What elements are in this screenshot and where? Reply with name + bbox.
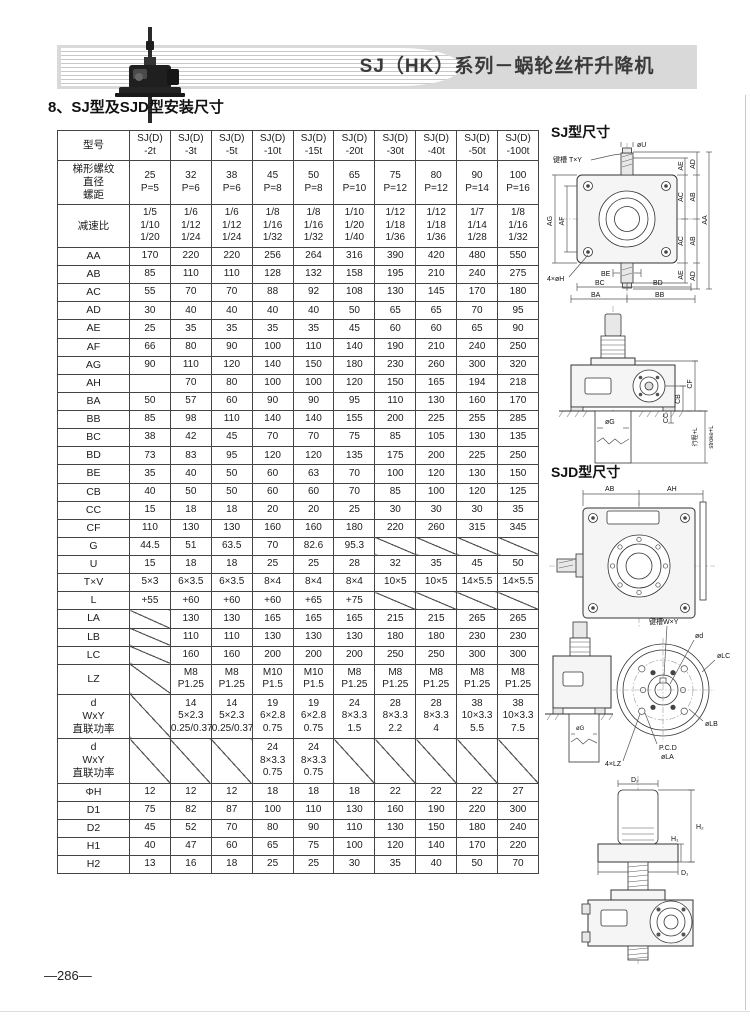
table-cell: 35 [498, 501, 539, 519]
table-cell: 18 [293, 783, 334, 801]
table-cell [375, 592, 416, 610]
table-cell: 10×5 [375, 574, 416, 592]
table-row: LC160160200200200250250300300 [58, 646, 539, 664]
table-cell: 100 [252, 801, 293, 819]
table-cell [457, 592, 498, 610]
table-cell: 12 [211, 783, 252, 801]
table-cell: 140 [416, 837, 457, 855]
dim-ab2: AB [605, 486, 615, 493]
table-row: D1758287100110130160190220300 [58, 801, 539, 819]
table-cell: 210 [416, 338, 457, 356]
table-cell: 25 [293, 556, 334, 574]
table-cell [130, 694, 171, 738]
table-cell: 75 [293, 837, 334, 855]
table-cell: 8×4 [334, 574, 375, 592]
table-cell: 65 [416, 302, 457, 320]
table-cell: 200 [416, 447, 457, 465]
table-row: CF110130130160160180220260315345 [58, 519, 539, 537]
table-cell: 140 [252, 356, 293, 374]
table-cell: 50 [130, 392, 171, 410]
table-cell: 160 [170, 646, 211, 664]
table-cell: 130 [457, 465, 498, 483]
table-cell: 25 P=5 [130, 161, 171, 205]
table-cell: 70 [211, 284, 252, 302]
table-cell: 8×4 [293, 574, 334, 592]
table-row: d WxY 直联功率14 5×2.3 0.25/0.3714 5×2.3 0.2… [58, 694, 539, 738]
table-cell: 200 [375, 411, 416, 429]
row-label: AH [58, 374, 130, 392]
table-cell: 390 [375, 247, 416, 265]
table-cell: 300 [457, 356, 498, 374]
table-cell: 5×3 [130, 574, 171, 592]
table-cell: 300 [498, 801, 539, 819]
table-cell: 275 [498, 266, 539, 284]
table-cell: 80 [252, 819, 293, 837]
table-cell: 220 [211, 247, 252, 265]
header-banner: SJ（HK）系列－蜗轮丝杆升降机 [57, 45, 697, 89]
dim-ae-bottom: AE [678, 270, 685, 280]
table-cell: 19 6×2.8 0.75 [293, 694, 334, 738]
table-cell: 24 8×3.3 0.75 [293, 739, 334, 783]
row-label: LZ [58, 664, 130, 694]
table-cell [416, 592, 457, 610]
table-cell: 158 [334, 266, 375, 284]
table-cell: 1/7 1/14 1/28 [457, 205, 498, 248]
table-cell: 25 [334, 501, 375, 519]
table-row: 梯形螺纹 直径 螺距25 P=532 P=638 P=645 P=850 P=8… [58, 161, 539, 205]
dim-bd: BD [653, 280, 663, 287]
table-cell: 180 [416, 628, 457, 646]
table-cell: 145 [416, 284, 457, 302]
dim-ad-bottom: AD [690, 271, 697, 281]
table-cell: 220 [170, 247, 211, 265]
table-cell: 200 [334, 646, 375, 664]
table-row: AE25353535354560606590 [58, 320, 539, 338]
table-cell: 120 [252, 447, 293, 465]
table-cell: 44.5 [130, 537, 171, 555]
dim-cc: CC [663, 413, 670, 423]
table-cell: 22 [375, 783, 416, 801]
table-cell: 87 [211, 801, 252, 819]
dim-4xh: 4×øH [547, 276, 564, 283]
dim-ac-top: AC [678, 192, 685, 202]
dim-ag: AG [547, 216, 554, 226]
table-cell: 70 [170, 284, 211, 302]
table-cell: +60 [252, 592, 293, 610]
table-cell: 345 [498, 519, 539, 537]
table-cell: 150 [416, 819, 457, 837]
table-cell: 140 [293, 411, 334, 429]
column-header: SJ(D) -50t [457, 131, 498, 161]
dim-pcd: P.C.D [659, 745, 677, 752]
dim-h1: H₁ [671, 836, 679, 843]
dim-h2: H₂ [696, 824, 704, 831]
table-cell: 15 [130, 501, 171, 519]
table-cell: 130 [375, 819, 416, 837]
table-cell: 1/8 1/16 1/32 [293, 205, 334, 248]
table-cell: 255 [457, 411, 498, 429]
row-label: LB [58, 628, 130, 646]
row-label: AD [58, 302, 130, 320]
table-row: AB85110110128132158195210240275 [58, 266, 539, 284]
table-cell: 240 [498, 819, 539, 837]
table-cell [498, 592, 539, 610]
table-cell: 65 [252, 837, 293, 855]
table-cell: 130 [170, 610, 211, 628]
table-cell: 35 [416, 556, 457, 574]
row-label: CB [58, 483, 130, 501]
table-cell: 110 [293, 801, 334, 819]
table-cell: 90 [293, 819, 334, 837]
table-cell: 240 [457, 266, 498, 284]
table-cell: 90 [211, 338, 252, 356]
table-cell: 170 [457, 284, 498, 302]
table-cell: 230 [498, 628, 539, 646]
table-cell: +75 [334, 592, 375, 610]
dim-ae-top: AE [678, 161, 685, 171]
table-cell: 315 [457, 519, 498, 537]
row-label: CF [58, 519, 130, 537]
table-cell: 200 [252, 646, 293, 664]
table-cell: 1/6 1/12 1/24 [211, 205, 252, 248]
table-cell: 135 [334, 447, 375, 465]
sj-side-view-drawing: øG CB CF CC 行程+L stroke+L [543, 302, 743, 467]
dim-cf: CF [687, 379, 694, 388]
table-cell: 1/12 1/18 1/36 [416, 205, 457, 248]
table-cell: 420 [416, 247, 457, 265]
table-row: d WxY 直联功率24 8×3.3 0.7524 8×3.3 0.75 [58, 739, 539, 783]
table-cell: 14 5×2.3 0.25/0.37 [211, 694, 252, 738]
dim-keyway-txy: 键槽 T×Y [553, 155, 582, 164]
table-row: CB40505060607085100120125 [58, 483, 539, 501]
table-cell: 51 [170, 537, 211, 555]
table-cell: 225 [416, 411, 457, 429]
table-cell: 130 [375, 284, 416, 302]
table-cell: 50 [170, 483, 211, 501]
table-cell: 170 [457, 837, 498, 855]
table-cell: M8 P1.25 [498, 664, 539, 694]
table-cell: 32 [375, 556, 416, 574]
table-cell: 240 [457, 338, 498, 356]
table-cell: 110 [334, 819, 375, 837]
dim-phi-la: øLA [661, 754, 674, 761]
table-cell: 95.3 [334, 537, 375, 555]
table-cell: 150 [375, 374, 416, 392]
table-cell: 260 [416, 356, 457, 374]
table-cell: 110 [375, 392, 416, 410]
table-cell: 110 [130, 519, 171, 537]
row-label: d WxY 直联功率 [58, 694, 130, 738]
table-cell: 18 [334, 783, 375, 801]
table-cell: 45 [334, 320, 375, 338]
table-row: BB8598110140140155200225255285 [58, 411, 539, 429]
table-cell: 170 [130, 247, 171, 265]
table-cell: 108 [334, 284, 375, 302]
table-cell: 16 [170, 856, 211, 874]
table-row: AH7080100100120150165194218 [58, 374, 539, 392]
table-cell: 40 [293, 302, 334, 320]
table-cell: 250 [498, 338, 539, 356]
table-cell: 175 [375, 447, 416, 465]
dim-d1: D₁ [681, 870, 689, 877]
row-label: AF [58, 338, 130, 356]
table-cell: 100 [252, 338, 293, 356]
table-cell: 14×5.5 [457, 574, 498, 592]
table-cell: 28 [334, 556, 375, 574]
table-cell: 95 [498, 302, 539, 320]
row-label: D1 [58, 801, 130, 819]
dim-bc: BC [595, 280, 605, 287]
table-row: BD738395120120135175200225250 [58, 447, 539, 465]
table-cell: 1/10 1/20 1/40 [334, 205, 375, 248]
table-cell: 85 [375, 429, 416, 447]
table-cell: 14 5×2.3 0.25/0.37 [170, 694, 211, 738]
table-cell: 70 [334, 465, 375, 483]
table-cell: 155 [334, 411, 375, 429]
table-cell: 18 [170, 556, 211, 574]
table-row: U15181825252832354550 [58, 556, 539, 574]
table-cell: 40 [170, 465, 211, 483]
table-cell: 70 [211, 819, 252, 837]
table-cell: 65 [375, 302, 416, 320]
table-cell: 160 [375, 801, 416, 819]
table-cell: 285 [498, 411, 539, 429]
table-cell: +55 [130, 592, 171, 610]
table-cell: 100 [252, 374, 293, 392]
table-cell: 170 [498, 392, 539, 410]
section-title: 8、SJ型及SJD型安装尺寸 [48, 96, 224, 117]
table-cell [457, 537, 498, 555]
table-cell: 130 [334, 628, 375, 646]
table-cell: 70 [334, 483, 375, 501]
table-cell: 125 [498, 483, 539, 501]
dim-phi-d: ød [695, 633, 703, 640]
table-cell: 110 [170, 266, 211, 284]
column-header: SJ(D) -100t [498, 131, 539, 161]
sj-nut-unit-drawing: D₂ H₂ H₁ D₁ [543, 774, 743, 966]
table-cell: 195 [375, 266, 416, 284]
table-cell: 18 [211, 856, 252, 874]
table-cell: 90 [498, 320, 539, 338]
table-cell: 70 [252, 429, 293, 447]
column-header: SJ(D) -2t [130, 131, 171, 161]
table-cell: 132 [293, 266, 334, 284]
table-cell: 38 [130, 429, 171, 447]
table-row: LB110110130130130180180230230 [58, 628, 539, 646]
table-cell: 1/6 1/12 1/24 [170, 205, 211, 248]
table-cell: 120 [293, 447, 334, 465]
table-cell: 19 6×2.8 0.75 [252, 694, 293, 738]
table-cell: 75 [130, 801, 171, 819]
row-label: BC [58, 429, 130, 447]
table-cell: 260 [416, 519, 457, 537]
table-cell [170, 739, 211, 783]
table-cell: 22 [457, 783, 498, 801]
table-wrapper: 型号SJ(D) -2tSJ(D) -3tSJ(D) -5tSJ(D) -10tS… [57, 130, 539, 874]
table-cell: 215 [375, 610, 416, 628]
dim-ba: BA [591, 292, 601, 299]
table-cell: 75 P=12 [375, 161, 416, 205]
table-cell: 47 [170, 837, 211, 855]
table-cell: 30 [457, 501, 498, 519]
table-row: AC5570708892108130145170180 [58, 284, 539, 302]
table-cell: 90 [293, 392, 334, 410]
dim-phi-g: øG [605, 419, 615, 426]
table-cell: 150 [498, 465, 539, 483]
table-cell: 130 [416, 392, 457, 410]
table-cell: 35 [252, 320, 293, 338]
table-cell: 50 [211, 465, 252, 483]
table-cell [416, 739, 457, 783]
table-cell: M8 P1.25 [211, 664, 252, 694]
table-cell [375, 739, 416, 783]
table-cell: 45 [130, 819, 171, 837]
page-right-rule [745, 95, 746, 1010]
dim-aa: AA [702, 215, 709, 225]
row-label: AE [58, 320, 130, 338]
table-cell: 18 [211, 556, 252, 574]
table-cell [130, 664, 171, 694]
table-cell: 50 [211, 483, 252, 501]
table-cell [211, 739, 252, 783]
table-cell: 28 8×3.3 2.2 [375, 694, 416, 738]
sjd-flange-view-drawing: øG 键槽W×Y ød øLC øLB P.C.D øLA 4×LZ [543, 614, 743, 774]
table-cell: 320 [498, 356, 539, 374]
table-cell: 130 [252, 628, 293, 646]
row-label: AC [58, 284, 130, 302]
table-cell: 220 [498, 837, 539, 855]
table-cell: 140 [334, 338, 375, 356]
table-row: LZM8 P1.25M8 P1.25M10 P1.5M10 P1.5M8 P1.… [58, 664, 539, 694]
table-row: BE354050606370100120130150 [58, 465, 539, 483]
table-cell: 200 [293, 646, 334, 664]
dim-4xlz: 4×LZ [605, 761, 622, 768]
table-cell: 130 [334, 801, 375, 819]
table-cell: 22 [416, 783, 457, 801]
row-label: AA [58, 247, 130, 265]
table-cell: 95 [334, 392, 375, 410]
row-label: BB [58, 411, 130, 429]
table-cell: 160 [293, 519, 334, 537]
table-cell: 120 [457, 483, 498, 501]
table-row: AA170220220256264316390420480550 [58, 247, 539, 265]
row-label: LA [58, 610, 130, 628]
row-label: LC [58, 646, 130, 664]
table-cell: 35 [170, 320, 211, 338]
table-cell [130, 646, 171, 664]
table-cell: 165 [252, 610, 293, 628]
table-cell: 120 [416, 465, 457, 483]
table-cell: 98 [170, 411, 211, 429]
table-cell: 300 [498, 646, 539, 664]
table-cell: 110 [293, 338, 334, 356]
row-label: AB [58, 266, 130, 284]
dim-d2: D₂ [631, 777, 639, 784]
table-cell: 180 [375, 628, 416, 646]
table-cell: 190 [416, 801, 457, 819]
table-row: H213161825253035405070 [58, 856, 539, 874]
table-cell: 250 [375, 646, 416, 664]
table-cell: 38 10×3.3 7.5 [498, 694, 539, 738]
dimension-table: 型号SJ(D) -2tSJ(D) -3tSJ(D) -5tSJ(D) -10tS… [57, 130, 539, 874]
table-cell: 100 [293, 374, 334, 392]
table-cell: 100 [375, 465, 416, 483]
table-cell: 300 [457, 646, 498, 664]
table-cell: 30 [375, 501, 416, 519]
dim-ab-top: AB [690, 192, 697, 202]
row-label: H2 [58, 856, 130, 874]
table-cell: 550 [498, 247, 539, 265]
sjd-drawing-label: SJD型尺寸 [551, 462, 620, 482]
table-cell: 92 [293, 284, 334, 302]
table-cell: 480 [457, 247, 498, 265]
table-cell: 30 [416, 501, 457, 519]
table-cell: 57 [170, 392, 211, 410]
table-cell: 120 [334, 374, 375, 392]
table-cell: 160 [457, 392, 498, 410]
row-label: CC [58, 501, 130, 519]
table-cell: 18 [252, 783, 293, 801]
table-cell: 30 [130, 302, 171, 320]
dim-phi-lb: øLB [705, 721, 718, 728]
table-cell: 60 [252, 483, 293, 501]
table-cell: 100 P=16 [498, 161, 539, 205]
table-cell: 12 [130, 783, 171, 801]
table-row: AG90110120140150180230260300320 [58, 356, 539, 374]
table-cell: 85 [130, 266, 171, 284]
table-cell: 180 [334, 356, 375, 374]
table-cell: 85 [130, 411, 171, 429]
table-cell: 130 [211, 610, 252, 628]
table-cell: 73 [130, 447, 171, 465]
table-cell: M8 P1.25 [375, 664, 416, 694]
table-cell: 85 [375, 483, 416, 501]
table-cell [130, 739, 171, 783]
table-cell [130, 610, 171, 628]
table-cell: 165 [293, 610, 334, 628]
table-row: 减速比1/5 1/10 1/201/6 1/12 1/241/6 1/12 1/… [58, 205, 539, 248]
table-row: AF668090100110140190210240250 [58, 338, 539, 356]
table-cell: 18 [170, 501, 211, 519]
table-cell: 130 [457, 429, 498, 447]
table-cell: 25 [252, 856, 293, 874]
dim-stroke-en: stroke+L [709, 425, 715, 449]
table-cell: 25 [252, 556, 293, 574]
table-cell: 25 [130, 320, 171, 338]
table-cell: 32 P=6 [170, 161, 211, 205]
table-cell: M8 P1.25 [416, 664, 457, 694]
table-cell: 35 [293, 320, 334, 338]
table-cell: 220 [375, 519, 416, 537]
column-header: SJ(D) -5t [211, 131, 252, 161]
table-cell: 60 [252, 465, 293, 483]
table-cell: 27 [498, 783, 539, 801]
table-cell: 135 [498, 429, 539, 447]
row-label: D2 [58, 819, 130, 837]
table-cell: 60 [211, 392, 252, 410]
table-cell: 220 [457, 801, 498, 819]
row-label: L [58, 592, 130, 610]
table-cell [457, 739, 498, 783]
table-cell: M8 P1.25 [170, 664, 211, 694]
row-label: H1 [58, 837, 130, 855]
dim-ad-top: AD [690, 159, 697, 169]
table-cell: 60 [211, 837, 252, 855]
table-cell: 65 [457, 320, 498, 338]
table-row: LA130130165165165215215265265 [58, 610, 539, 628]
table-cell: 180 [334, 519, 375, 537]
column-header: SJ(D) -30t [375, 131, 416, 161]
